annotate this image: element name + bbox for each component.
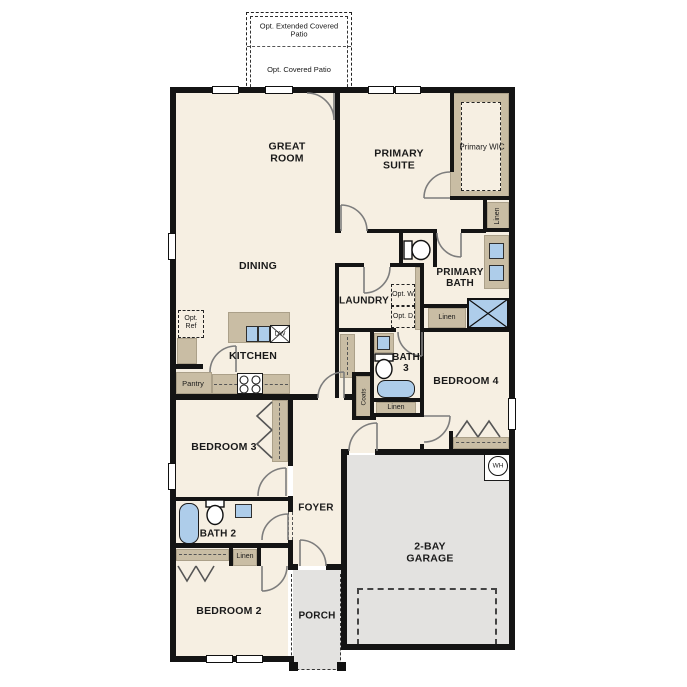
bedroom4-closet-shelf xyxy=(453,437,509,449)
wall xyxy=(341,449,347,650)
window xyxy=(168,233,176,260)
cabinet-dash xyxy=(347,337,348,375)
wall xyxy=(509,87,515,650)
wall xyxy=(424,304,468,308)
window xyxy=(395,86,421,94)
window xyxy=(508,398,516,430)
laundry-label: LAUNDRY xyxy=(339,295,389,306)
porch-post xyxy=(289,662,298,671)
wall xyxy=(344,394,356,400)
wall xyxy=(352,416,376,420)
water-heater-label: WH xyxy=(493,462,504,469)
closet-dash xyxy=(456,442,506,443)
porch-post xyxy=(337,662,346,671)
wall xyxy=(420,444,424,449)
primary-wic-label: Primary WIC xyxy=(459,144,505,153)
wall xyxy=(257,548,261,566)
stove xyxy=(237,373,263,394)
pantry-label: Pantry xyxy=(182,380,204,388)
wall xyxy=(374,398,420,402)
wall xyxy=(170,87,176,662)
primary-shower xyxy=(467,298,509,329)
window xyxy=(265,86,293,94)
window xyxy=(368,86,394,94)
wall xyxy=(367,229,399,233)
window xyxy=(236,655,263,663)
porch-label: PORCH xyxy=(298,610,335,621)
wall xyxy=(352,372,374,376)
opt-ref-label: Opt. Ref xyxy=(178,315,204,331)
primary-bath-label: PRIMARY BATH xyxy=(428,267,492,289)
window xyxy=(168,463,176,490)
opt-dryer-label: Opt. D xyxy=(391,313,415,321)
bedroom2-label: BEDROOM 2 xyxy=(182,606,276,618)
opt-covered-patio-label: Opt. Covered Patio xyxy=(247,66,351,74)
dashed-opening xyxy=(288,512,293,540)
linen-label-bath2: Linen xyxy=(236,553,253,561)
opt-washer-label: Opt. W xyxy=(391,291,415,299)
wall xyxy=(170,497,288,501)
wall xyxy=(288,496,293,512)
bedroom3-closet xyxy=(272,400,288,462)
floor-plan: Opt. Extended Covered Patio Opt. Covered… xyxy=(0,0,687,687)
bath2-tub xyxy=(179,503,199,544)
wall xyxy=(229,548,233,566)
bath2-label: BATH 2 xyxy=(200,528,237,539)
primary-suite-label: PRIMARY SUITE xyxy=(362,148,436,172)
wall xyxy=(420,263,424,332)
bedroom4-label: BEDROOM 4 xyxy=(421,376,511,388)
kitchen-label: KITCHEN xyxy=(229,351,277,363)
island-sink-left xyxy=(246,326,258,342)
wall xyxy=(399,229,437,233)
wall xyxy=(399,229,403,267)
wall xyxy=(288,540,293,566)
wall xyxy=(449,431,453,449)
closet-dash xyxy=(279,403,280,459)
garage-label: 2-BAY GARAGE xyxy=(397,541,463,565)
bath3-sink xyxy=(377,336,390,350)
linen-label-primary: Linen xyxy=(438,314,455,322)
window xyxy=(206,655,233,663)
wall xyxy=(420,328,510,332)
wall xyxy=(341,449,349,455)
great-room-label: GREAT ROOM xyxy=(258,141,316,165)
bedroom3-label: BEDROOM 3 xyxy=(179,442,269,454)
bedroom2-closet xyxy=(176,549,229,561)
linen-label-hall: Linen xyxy=(494,207,502,224)
wall xyxy=(370,413,424,417)
wall xyxy=(450,196,510,200)
wall xyxy=(390,263,424,267)
wall xyxy=(335,93,340,233)
bath3-label: BATH 3 xyxy=(388,352,424,374)
kitchen-cabinet xyxy=(177,338,197,364)
foyer-label: FOYER xyxy=(298,502,333,513)
island-sink-right xyxy=(258,326,270,342)
porch-dash-outline xyxy=(291,574,341,670)
dishwasher-label: DW xyxy=(275,330,286,337)
wall xyxy=(288,564,298,570)
wall xyxy=(175,364,203,369)
bath3-tub xyxy=(377,380,415,398)
wall xyxy=(326,564,346,570)
garage-door-dash xyxy=(357,588,497,645)
patio-divider xyxy=(247,46,351,47)
wall xyxy=(170,394,318,400)
closet-dash xyxy=(179,554,226,555)
primary-sink-1 xyxy=(489,243,504,259)
wall xyxy=(483,228,510,232)
wall xyxy=(450,93,454,172)
opt-extended-patio-label: Opt. Extended Covered Patio xyxy=(255,23,343,40)
window xyxy=(212,86,239,94)
wall xyxy=(433,229,437,267)
dining-label: DINING xyxy=(239,261,277,273)
linen-label-bath3: Linen xyxy=(387,404,404,412)
coats-label: Coats xyxy=(360,389,367,406)
wall xyxy=(288,394,293,466)
wall xyxy=(341,644,515,650)
wall xyxy=(335,229,341,233)
bath2-sink xyxy=(235,504,252,518)
wall xyxy=(339,263,364,267)
wall xyxy=(335,328,396,332)
wall xyxy=(375,449,515,455)
